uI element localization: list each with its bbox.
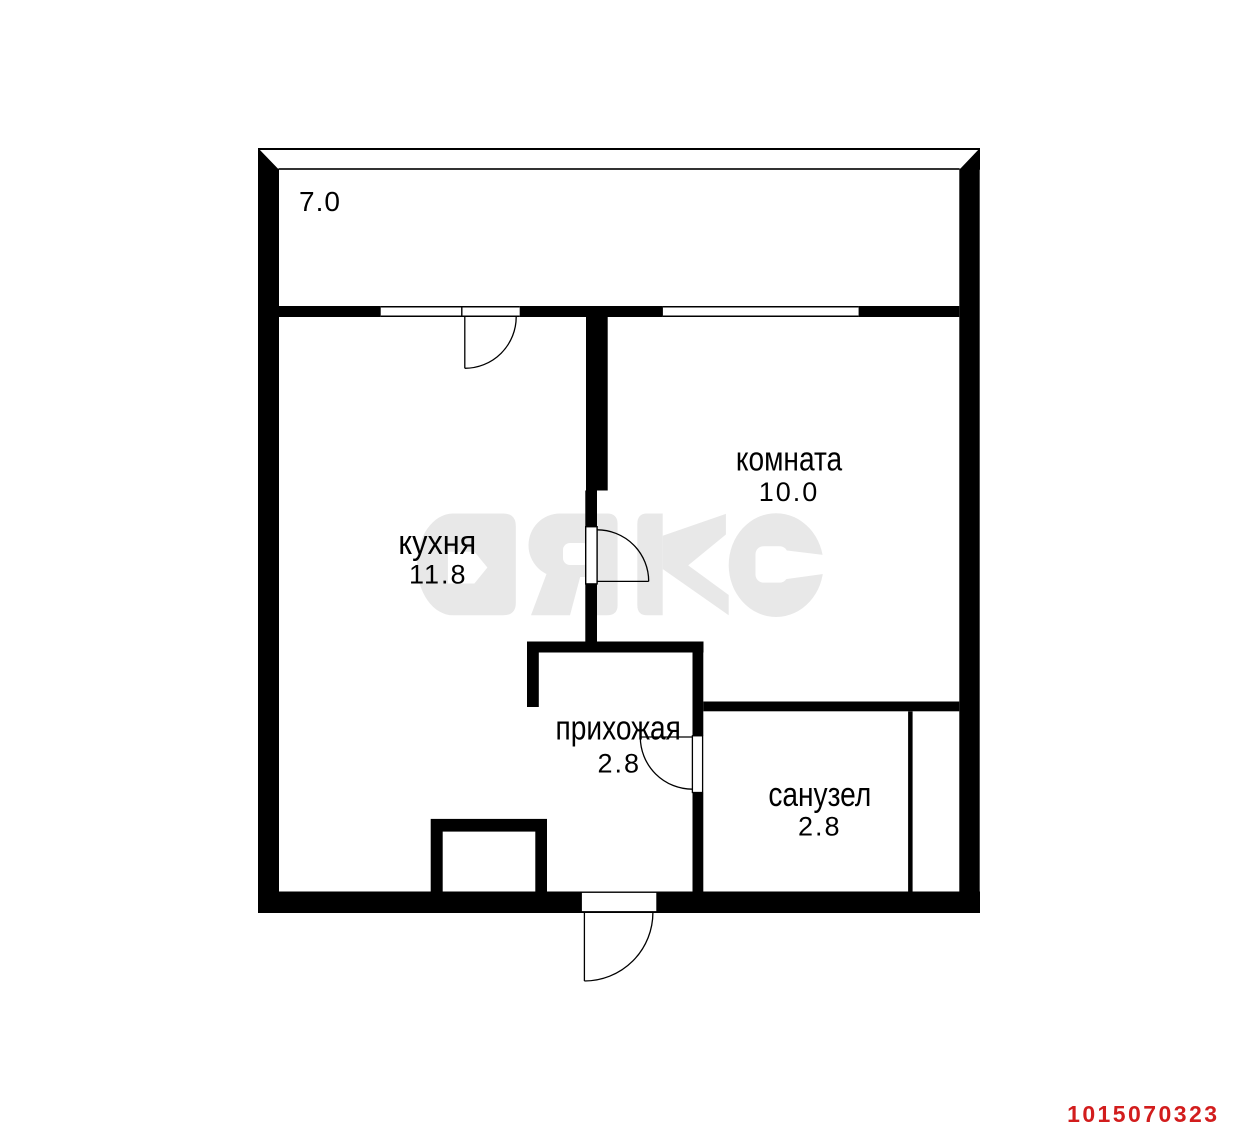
svg-text:комната: комната [736, 440, 843, 478]
svg-text:11.8: 11.8 [409, 560, 468, 590]
svg-text:10.0: 10.0 [759, 477, 820, 507]
svg-text:кухня: кухня [398, 524, 476, 562]
svg-text:1015070323: 1015070323 [1067, 1101, 1219, 1127]
svg-text:2.8: 2.8 [598, 749, 642, 779]
svg-text:2.8: 2.8 [798, 812, 842, 842]
svg-text:прихожая: прихожая [556, 709, 681, 747]
svg-text:7.0: 7.0 [299, 186, 341, 217]
svg-text:санузел: санузел [768, 775, 871, 813]
